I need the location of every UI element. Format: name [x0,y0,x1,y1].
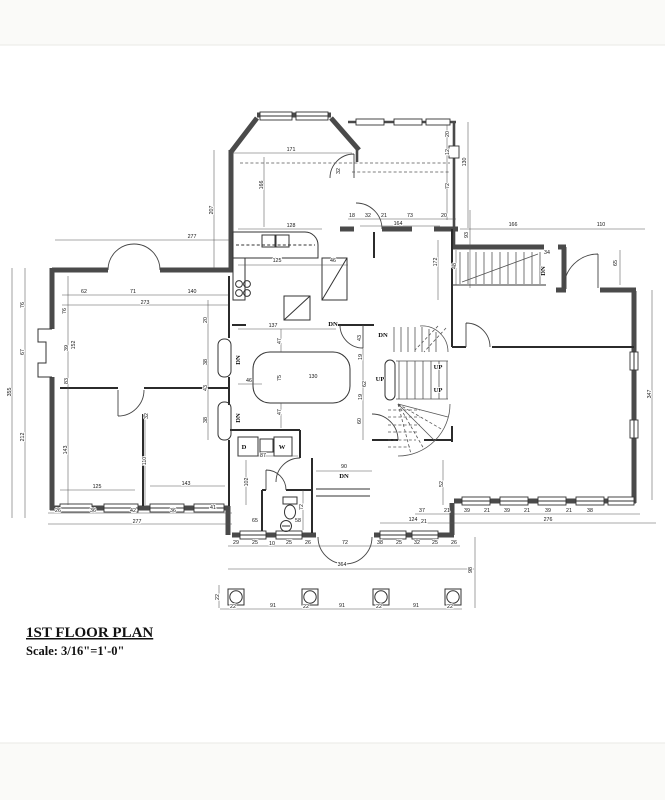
dimension-label: 32 [336,168,342,174]
window [394,119,422,125]
dimension-label: 128 [287,223,296,229]
dimension-label: 26 [451,540,457,546]
french-door-arc [108,244,160,270]
cooktop-burner [236,290,243,297]
plan-scale: Scale: 3/16"=1'-0" [26,644,124,658]
dimension-label: 38 [377,540,383,546]
window [576,497,604,505]
dimension-label: 42 [130,508,136,514]
dimension-label: 19 [358,354,364,360]
dimension-label: 125 [93,484,102,490]
dimension-label: 38 [203,359,209,365]
dimension-label: 65 [613,260,619,266]
dimension-label: 143 [63,446,69,455]
dimension-label: 21 [484,508,490,514]
window [296,112,328,120]
plan-label: DN [339,473,349,480]
dimension-label: 22 [230,604,236,610]
cased-opening-column [218,339,231,377]
dimension-label: 130 [309,374,318,380]
dimension-label: 21 [524,508,530,514]
window [356,119,384,125]
dimension-label: 93 [464,232,470,238]
dimension-label: 124 [409,517,418,523]
dimension-label: 71 [130,289,136,295]
window [412,531,438,539]
dimension-label: 26 [55,508,61,514]
dimension-label: 58 [295,518,301,524]
window [630,420,638,438]
dimension-label: 166 [509,222,518,228]
dimension-label: 20 [203,317,209,323]
dimension-label: 29 [233,540,239,546]
dimension-lines [12,122,656,609]
overhead-dashed-lines [240,163,450,172]
dimension-label: 277 [188,234,197,240]
dimension-label: 62 [81,289,87,295]
dimension-label: 277 [133,519,142,525]
dimension-label: 207 [209,206,215,215]
dimension-label: 38 [587,508,593,514]
dimension-label: 20 [441,213,447,219]
window [240,531,266,539]
dimension-label: 52 [439,481,445,487]
dimension-label: 171 [287,147,296,153]
dimension-label: 25 [396,540,402,546]
dimension-label: 21 [566,508,572,514]
dimension-label: 32 [144,413,150,419]
dimension-label: 143 [182,481,191,487]
window [630,352,638,370]
dimension-label: 25 [252,540,258,546]
window [194,504,224,512]
dimension-label: 164 [394,221,403,227]
plan-label: D [242,444,247,451]
dimension-label: 212 [20,433,26,442]
dimension-label: 46 [330,258,336,264]
dimension-label: 22 [303,604,309,610]
dimension-label: 73 [407,213,413,219]
dimension-label: 22 [447,604,453,610]
dimension-label: 26 [305,540,311,546]
dimension-label: 21 [381,213,387,219]
dimension-label: 32 [365,213,371,219]
dimension-label: 39 [504,508,510,514]
dimension-label: 48 [452,263,458,269]
window [276,531,302,539]
dimension-label: 36 [90,508,96,514]
porch-column [228,589,244,605]
dimension-label: 21 [444,508,450,514]
dimension-label: 98 [468,567,474,573]
porch-column [302,589,318,605]
foyer-opening [253,352,350,403]
dimension-label: 43 [357,335,363,341]
dimension-label: 273 [141,300,150,306]
window [260,112,292,120]
title-block: 1ST FLOOR PLAN Scale: 3/16"=1'-0" [26,625,153,658]
dimension-label: 25 [286,540,292,546]
dimension-label: 22 [376,604,382,610]
dimension-label: 21 [421,519,427,525]
dimension-label: 46 [246,378,252,384]
cooktop-burner [236,281,243,288]
window [60,504,92,512]
plan-label: UP [376,376,385,383]
dimension-label: 102 [244,478,250,487]
dimension-label: 41 [210,505,216,511]
dimension-label: 87 [260,453,266,459]
dimension-label: 39 [545,508,551,514]
dimension-label: 130 [462,158,468,167]
dimension-label: 140 [188,289,197,295]
dimension-label: 37 [419,508,425,514]
plan-label: UP [434,387,443,394]
dimension-label: 20 [445,131,451,137]
window [150,504,184,512]
floorplan-svg: 1711662071281254632172201272130183221732… [0,0,665,800]
dimension-label: 137 [269,323,278,329]
cased-opening-column [218,402,231,440]
plan-label: DN [378,332,388,339]
dimension-label: 19 [358,394,364,400]
dimension-label: 76 [20,302,26,308]
porch-column [445,589,461,605]
plan-label: UP [434,364,443,371]
dimension-label: 38 [203,417,209,423]
plan-label: DN [235,355,242,365]
porch-column [373,589,389,605]
dimension-label: 76 [62,308,68,314]
window [462,497,490,505]
dimension-label: 39 [464,508,470,514]
dimension-label: 62 [362,381,368,387]
plan-labels: DNDNDNDNUPUPUPDNDNDW [235,266,547,480]
plan-label: DN [328,321,338,328]
dimension-label: 32 [414,540,420,546]
dimension-label: 47 [277,409,283,415]
dimension-label: 25 [432,540,438,546]
dimension-label: 91 [413,603,419,609]
dimension-label: 60 [357,418,363,424]
dimension-label: 34 [544,250,550,256]
dimension-label: 39 [64,345,70,351]
dimension-label: 355 [7,388,13,397]
dimension-label: 72 [342,540,348,546]
window [608,497,634,505]
dimension-label: 83 [64,378,70,384]
dimension-label: 67 [20,349,26,355]
dimension-label: 110 [142,457,148,465]
floor-plan-sheet: 1711662071281254632172201272130183221732… [0,0,665,800]
dimension-label: 91 [270,603,276,609]
laundry-sink [260,439,273,452]
dimension-labels: 1711662071281254632172201272130183221732… [7,131,653,610]
dimension-label: 110 [597,222,605,228]
dimension-label: 172 [433,258,439,267]
dimension-label: 125 [273,258,282,264]
dimension-label: 75 [277,375,283,381]
dimension-label: 152 [71,341,77,350]
dimension-label: 43 [203,385,209,391]
window [380,531,406,539]
dimension-label: 47 [277,338,283,344]
fixtures [218,232,461,605]
dimension-label: 347 [647,390,653,399]
dimension-label: 72 [299,504,305,510]
plan-title: 1ST FLOOR PLAN [26,625,153,641]
stair-newel [385,360,395,400]
window [500,497,528,505]
plan-label: DN [235,413,242,423]
toilet-tank [283,497,297,504]
dimension-label: 90 [341,464,347,470]
dimension-label: 166 [259,181,265,190]
entry-steps [316,489,370,496]
dimension-label: 22 [215,594,221,600]
dimension-label: 18 [349,213,355,219]
window [538,497,566,505]
toilet-bowl [285,505,296,519]
dimension-label: 65 [252,518,258,524]
dimension-label: 10 [269,541,275,547]
window [426,119,450,125]
dimension-label: 36 [170,508,176,514]
dimension-label: 276 [544,517,553,523]
dimension-label: 72 [445,183,451,189]
dimension-label: 91 [339,603,345,609]
dimension-label: 364 [338,562,347,568]
dimension-label: 12 [445,149,451,155]
plan-label: W [279,444,286,451]
plan-label: DN [540,266,547,276]
